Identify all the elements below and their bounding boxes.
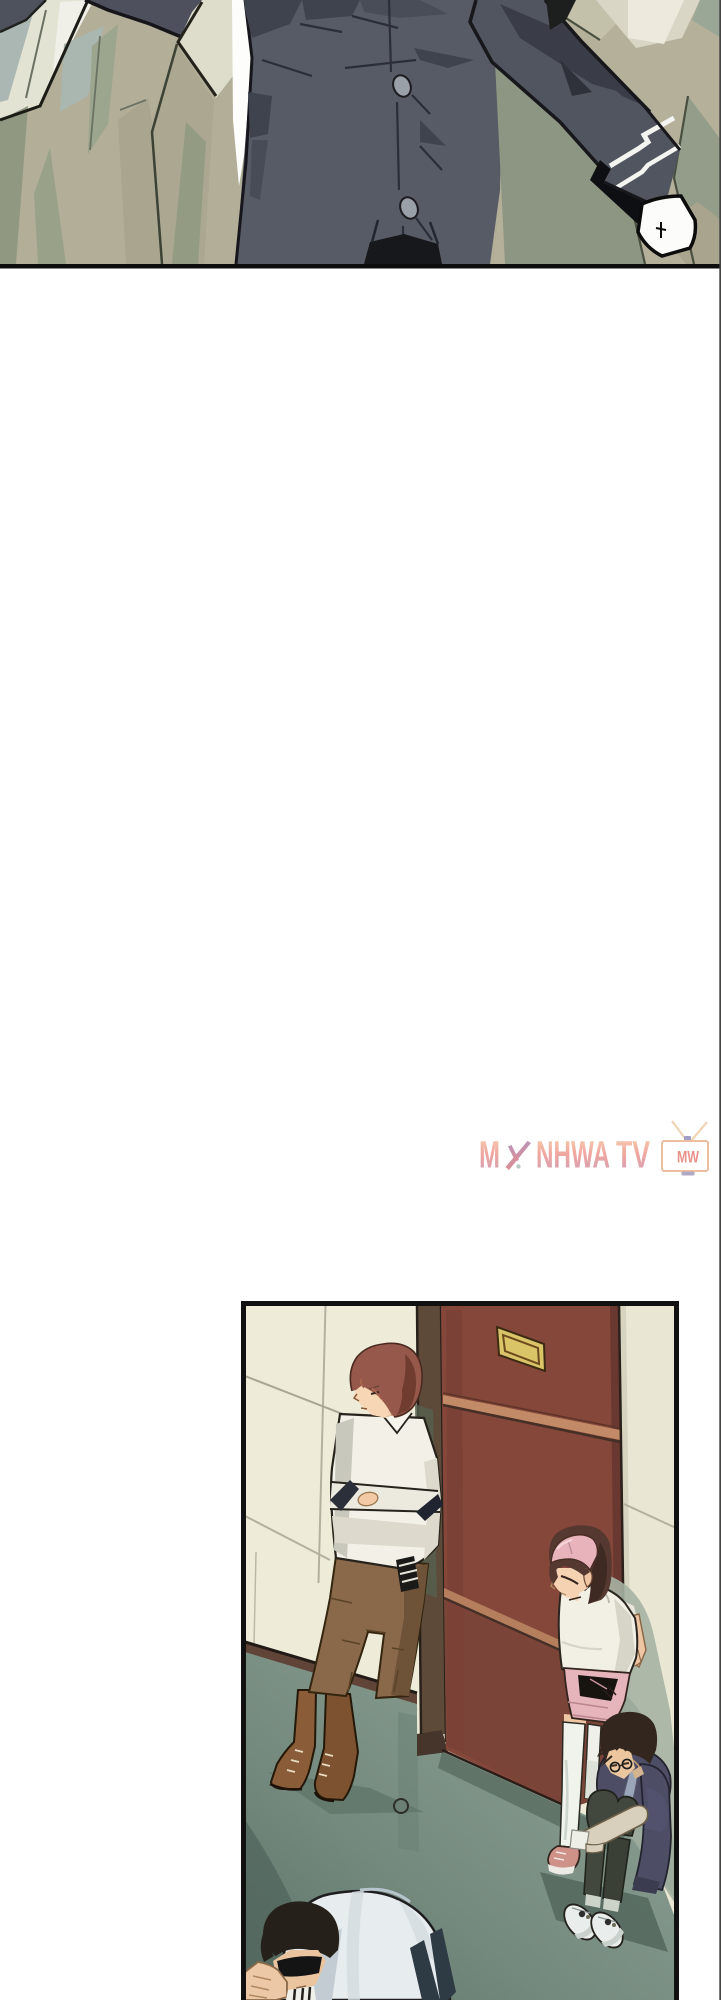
svg-text:M: M (479, 1135, 500, 1177)
svg-text:TV: TV (616, 1135, 650, 1177)
svg-text:MW: MW (677, 1148, 700, 1167)
svg-text:NHWA: NHWA (536, 1135, 610, 1177)
